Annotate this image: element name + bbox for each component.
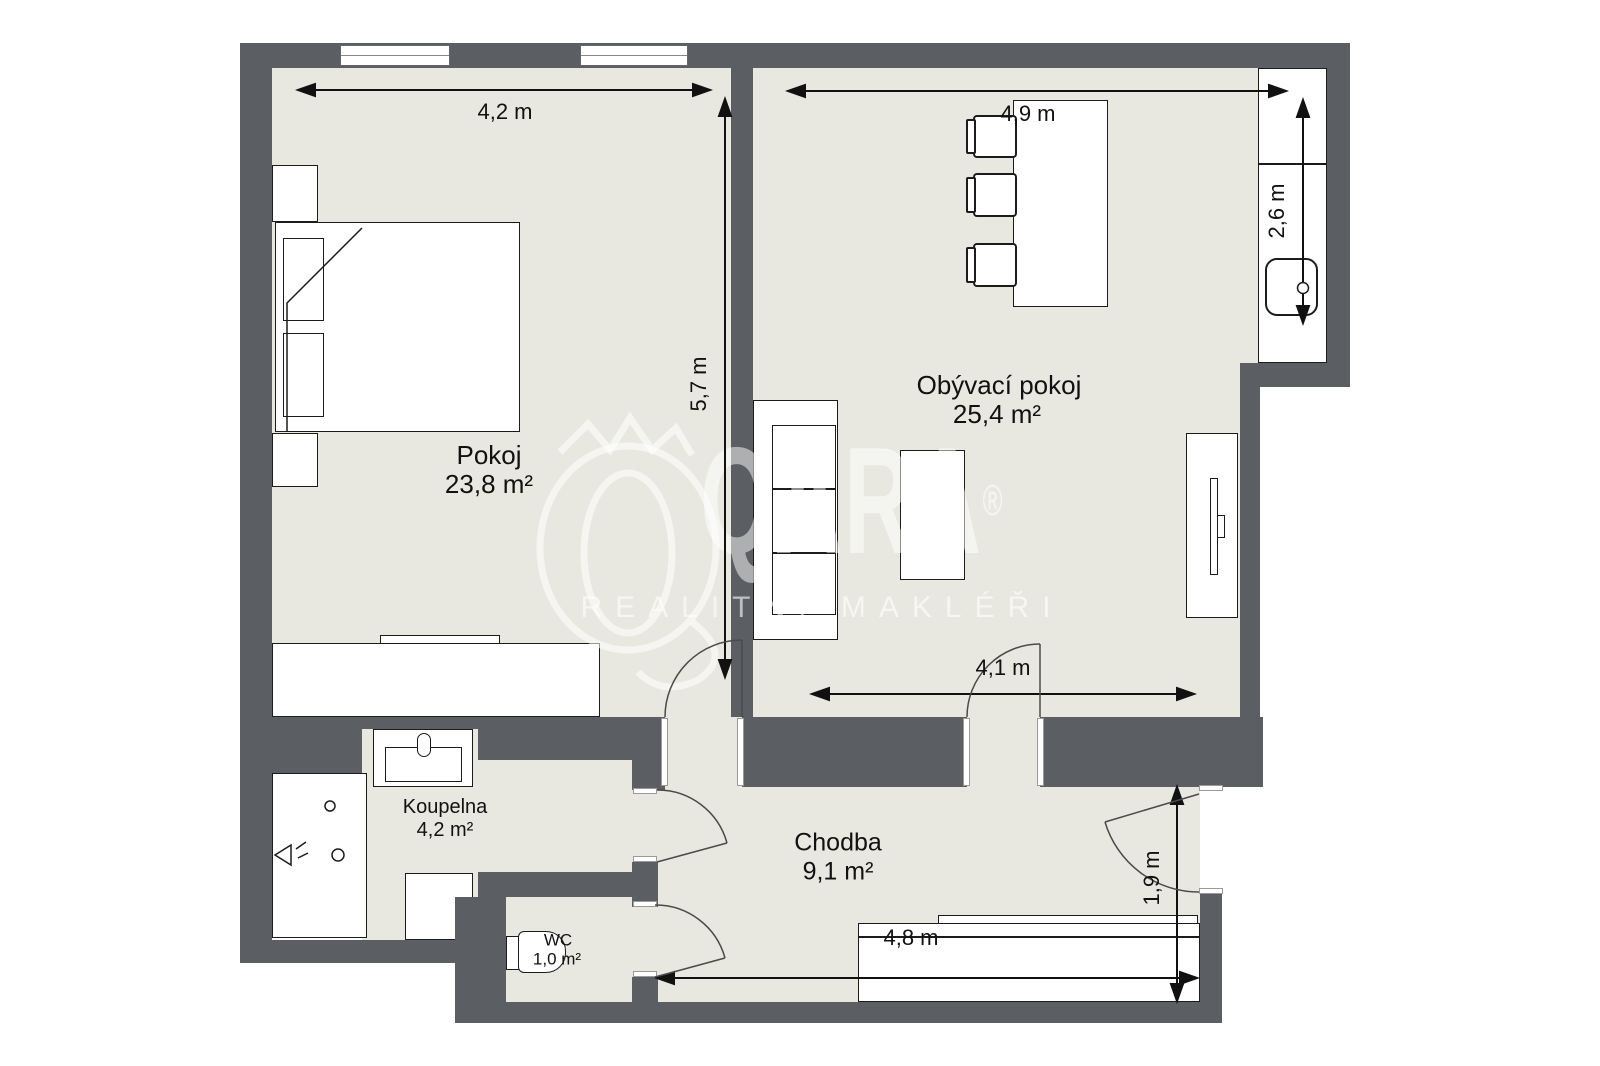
shower-icon xyxy=(275,842,308,865)
bed-fold-line xyxy=(287,228,362,432)
room-area-obyvaci: 25,4 m² xyxy=(953,401,1041,427)
floor-plan: QARA® REALITNÍ MAKLÉŘI Pokoj 23,8 m² Obý… xyxy=(0,0,1600,1066)
dim-label-chodba-width: 4,8 m xyxy=(883,927,938,949)
room-label-obyvaci: Obývací pokoj xyxy=(917,372,1082,398)
room-label-wc: WC xyxy=(544,932,572,949)
room-area-pokoj: 23,8 m² xyxy=(445,471,533,497)
bathtub-handle-icon xyxy=(325,801,335,811)
dim-label-entry-depth: 1,9 m xyxy=(1141,850,1163,905)
room-area-koupelna: 4,2 m² xyxy=(417,820,474,840)
dimension-arrow-obyvaci-bottom xyxy=(812,688,1194,700)
dimension-arrow-entry-depth xyxy=(1171,787,1183,1001)
room-area-chodba: 9,1 m² xyxy=(803,860,874,885)
dimension-arrow-pokoj-height xyxy=(719,99,731,677)
dimension-arrow-pokoj-width xyxy=(298,84,710,96)
room-area-wc: 1,0 m² xyxy=(533,951,581,968)
plan-overlay-graphics xyxy=(0,0,1600,1066)
door-wc xyxy=(655,905,725,977)
dim-label-pokoj-height: 5,7 m xyxy=(688,356,710,411)
room-label-koupelna: Koupelna xyxy=(403,797,488,817)
door-pokoj xyxy=(665,640,742,717)
bathtub-drain-icon xyxy=(332,849,344,861)
dim-label-kitchen-depth: 2,6 m xyxy=(1266,183,1288,238)
dim-label-obyvaci-width: 4,9 m xyxy=(1000,103,1055,125)
door-koupelna xyxy=(657,790,727,862)
room-label-pokoj: Pokoj xyxy=(456,442,521,468)
room-label-chodba: Chodba xyxy=(794,831,882,856)
dim-label-pokoj-width: 4,2 m xyxy=(477,101,532,123)
dimension-arrow-chodba-width xyxy=(657,972,1197,984)
dim-label-obyvaci-bottom: 4,1 m xyxy=(975,657,1030,679)
dimension-arrow-obyvaci-width xyxy=(788,85,1286,97)
kitchen-faucet-icon xyxy=(1298,283,1309,294)
